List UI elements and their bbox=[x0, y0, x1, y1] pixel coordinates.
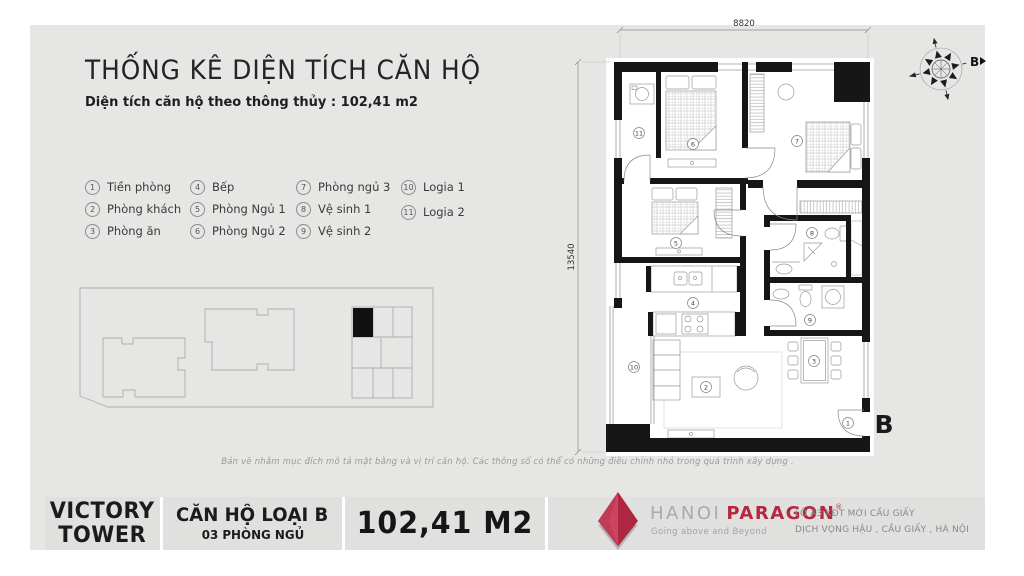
svg-text:4: 4 bbox=[691, 299, 695, 307]
dresser-bedroom1 bbox=[656, 248, 702, 255]
legend-item: 11Logia 2 bbox=[401, 201, 465, 223]
svg-text:2: 2 bbox=[704, 383, 708, 391]
room-marker: 6 bbox=[688, 139, 699, 150]
svg-text:7: 7 bbox=[795, 137, 799, 145]
footer-divider bbox=[545, 497, 548, 550]
address-line2: DỊCH VỌNG HẬU , CẦU GIẤY , HÀ NỘI bbox=[795, 522, 969, 538]
svg-text:9: 9 bbox=[808, 316, 812, 324]
svg-text:5: 5 bbox=[674, 239, 678, 247]
building-b-outline bbox=[205, 309, 294, 370]
room-name: Phòng Ngủ 2 bbox=[212, 224, 286, 238]
unit-bedrooms-label: 03 PHÒNG NGỦ bbox=[201, 526, 304, 544]
legend-item: 1Tiền phòng bbox=[85, 176, 181, 198]
legend-column-1: 1Tiền phòng 2Phòng khách 3Phòng ăn bbox=[85, 176, 181, 242]
utility-shaft bbox=[851, 221, 862, 275]
legend-item: 7Phòng ngủ 3 bbox=[296, 176, 390, 198]
room-name: Tiền phòng bbox=[107, 180, 171, 194]
tower-name-line2: TOWER bbox=[59, 524, 147, 548]
svg-text:11: 11 bbox=[635, 129, 643, 137]
wardrobe-bedroom1 bbox=[716, 188, 732, 238]
address-line1: LÔ A3 KĐT MỚI CẦU GIẤY bbox=[795, 506, 969, 522]
room-marker: 5 bbox=[671, 238, 682, 249]
closet-bedroom3 bbox=[800, 201, 862, 213]
highlighted-unit-b bbox=[353, 308, 373, 337]
room-number-badge: 2 bbox=[85, 202, 100, 217]
floor-plan: 8820 13540 bbox=[555, 8, 1000, 468]
room-marker: 3 bbox=[809, 356, 820, 367]
brand-logo-gem-icon bbox=[590, 492, 646, 550]
room-marker: 8 bbox=[807, 228, 818, 239]
room-number-badge: 5 bbox=[190, 202, 205, 217]
room-number-badge: 7 bbox=[296, 180, 311, 195]
legend-item: 3Phòng ăn bbox=[85, 220, 181, 242]
room-marker: 4 bbox=[688, 298, 699, 309]
room-number-badge: 9 bbox=[296, 224, 311, 239]
room-marker: 2 bbox=[701, 382, 712, 393]
kitchen-counter-stove bbox=[653, 312, 735, 336]
svg-text:10: 10 bbox=[630, 363, 638, 371]
svg-text:1: 1 bbox=[846, 419, 850, 427]
legend-item: 4Bếp bbox=[190, 176, 286, 198]
svg-text:3: 3 bbox=[812, 357, 816, 365]
entry-section-label: B bbox=[874, 410, 893, 439]
site-boundary bbox=[80, 288, 433, 407]
room-name: Vệ sinh 1 bbox=[318, 202, 371, 216]
room-name: Logia 1 bbox=[423, 180, 465, 194]
room-name: Phòng Ngủ 1 bbox=[212, 202, 286, 216]
washer-bath2 bbox=[822, 286, 844, 308]
room-name: Vệ sinh 2 bbox=[318, 224, 371, 238]
footer-area-cell: 102,41 M2 bbox=[345, 497, 545, 550]
dimension-left: 13540 bbox=[567, 59, 610, 455]
legend-item: 2Phòng khách bbox=[85, 198, 181, 220]
room-marker: 9 bbox=[805, 315, 816, 326]
unit-type-label: CĂN HỘ LOẠI B bbox=[176, 504, 328, 526]
room-number-badge: 10 bbox=[401, 180, 416, 195]
room-name: Bếp bbox=[212, 180, 234, 194]
armchair bbox=[734, 366, 758, 390]
room-marker: 7 bbox=[792, 136, 803, 147]
wardrobe-bedroom3 bbox=[750, 74, 764, 132]
dimension-top: 8820 bbox=[617, 19, 871, 58]
svg-text:6: 6 bbox=[691, 140, 695, 148]
dimension-width-label: 8820 bbox=[733, 19, 755, 29]
washing-machine bbox=[630, 84, 654, 104]
legend-item: 5Phòng Ngủ 1 bbox=[190, 198, 286, 220]
sofa bbox=[653, 340, 680, 400]
room-number-badge: 1 bbox=[85, 180, 100, 195]
footer-tower-cell: VICTORY TOWER bbox=[45, 497, 160, 550]
brand-address: LÔ A3 KĐT MỚI CẦU GIẤY DỊCH VỌNG HẬU , C… bbox=[795, 506, 969, 538]
footer-unit-cell: CĂN HỘ LOẠI B 03 PHÒNG NGỦ bbox=[163, 497, 342, 550]
legend-item: 9Vệ sinh 2 bbox=[296, 220, 390, 242]
room-name: Phòng ngủ 3 bbox=[318, 180, 390, 194]
site-key-plan bbox=[75, 282, 445, 414]
room-name: Phòng khách bbox=[107, 202, 181, 216]
compass-north-arrow bbox=[980, 57, 986, 65]
dresser-bedroom2 bbox=[668, 159, 716, 167]
compass-north-label: B bbox=[970, 55, 979, 69]
room-number-badge: 3 bbox=[85, 224, 100, 239]
legend-item: 6Phòng Ngủ 2 bbox=[190, 220, 286, 242]
legend-column-3: 7Phòng ngủ 3 8Vệ sinh 1 9Vệ sinh 2 bbox=[296, 176, 390, 242]
brand-name-gray: HANOI bbox=[650, 503, 721, 524]
toilet-bath2 bbox=[799, 285, 812, 307]
sink-bath2 bbox=[773, 289, 789, 299]
unit-area-value: 102,41 M2 bbox=[357, 506, 534, 541]
room-marker: 11 bbox=[634, 128, 645, 139]
room-number-badge: 6 bbox=[190, 224, 205, 239]
dimension-height-label: 13540 bbox=[567, 243, 577, 270]
brochure-page: THỐNG KÊ DIỆN TÍCH CĂN HỘ Diện tích căn … bbox=[0, 0, 1024, 576]
compass-rose: B bbox=[902, 32, 986, 108]
legend-item: 10Logia 1 bbox=[401, 176, 465, 198]
room-number-badge: 4 bbox=[190, 180, 205, 195]
room-number-badge: 8 bbox=[296, 202, 311, 217]
room-marker: 10 bbox=[629, 362, 640, 373]
legend-column-2: 4Bếp 5Phòng Ngủ 1 6Phòng Ngủ 2 bbox=[190, 176, 286, 242]
page-title: THỐNG KÊ DIỆN TÍCH CĂN HỘ bbox=[85, 55, 481, 86]
kitchen-counter-sink bbox=[651, 266, 737, 292]
legend-column-4: 10Logia 1 11Logia 2 bbox=[401, 176, 465, 223]
brand-tagline: Going above and Beyond bbox=[651, 527, 767, 537]
tower-name-line1: VICTORY bbox=[50, 500, 155, 524]
legend-item: 8Vệ sinh 1 bbox=[296, 198, 390, 220]
room-name: Logia 2 bbox=[423, 205, 465, 219]
tv-console bbox=[668, 430, 714, 438]
svg-text:8: 8 bbox=[810, 229, 814, 237]
room-name: Phòng ăn bbox=[107, 224, 161, 238]
building-a-outline bbox=[103, 338, 185, 397]
disclaimer-text: Bản vẽ nhằm mục đích mô tả mặt bằng và v… bbox=[30, 457, 985, 467]
page-subtitle: Diện tích căn hộ theo thông thủy : 102,4… bbox=[85, 95, 418, 110]
building-c-outline bbox=[352, 307, 412, 398]
room-number-badge: 11 bbox=[401, 205, 416, 220]
room-marker: 1 bbox=[843, 418, 854, 429]
